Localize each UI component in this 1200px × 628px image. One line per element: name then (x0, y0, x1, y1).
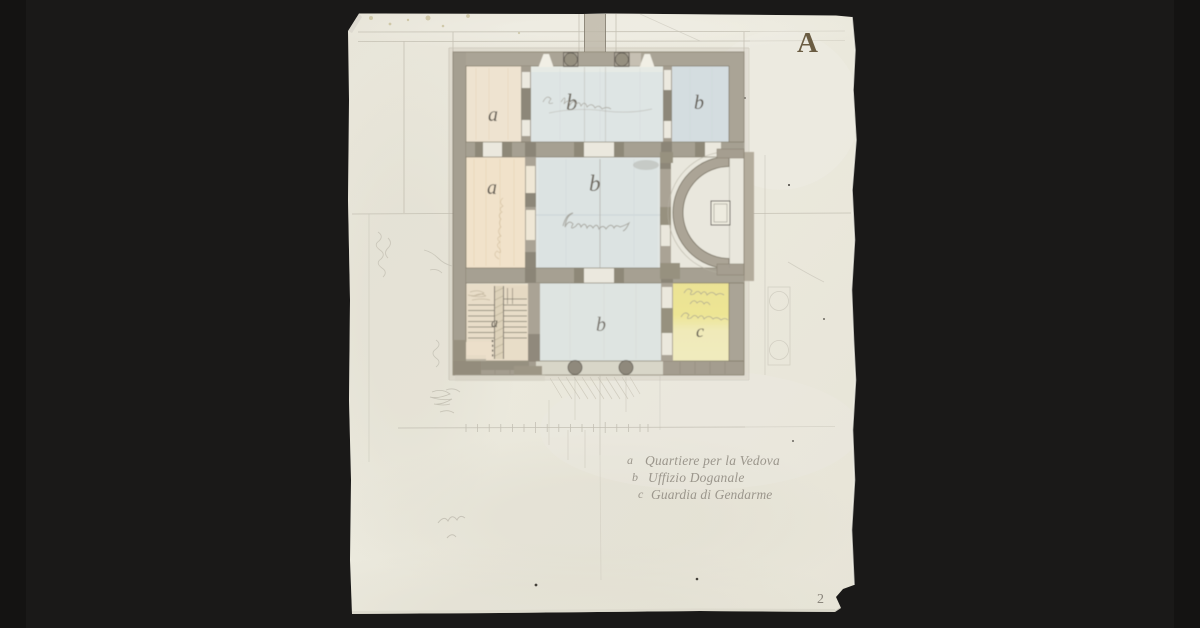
svg-text:Quartiere per la Vedova: Quartiere per la Vedova (645, 453, 780, 468)
svg-text:a: a (488, 104, 498, 126)
svg-text:Uffizio Doganale: Uffizio Doganale (648, 470, 745, 485)
svg-text:A: A (797, 27, 818, 59)
svg-text:a: a (491, 316, 498, 331)
svg-text:c: c (696, 321, 704, 341)
svg-text:b: b (596, 314, 606, 336)
svg-text:c: c (638, 487, 644, 501)
svg-text:b: b (694, 92, 704, 114)
svg-text:a: a (627, 453, 633, 467)
svg-text:a: a (487, 177, 497, 199)
svg-text:2: 2 (817, 592, 824, 607)
svg-text:b: b (589, 171, 601, 196)
svg-text:b: b (632, 470, 638, 484)
svg-text:Guardia di Gendarme: Guardia di Gendarme (651, 487, 772, 502)
